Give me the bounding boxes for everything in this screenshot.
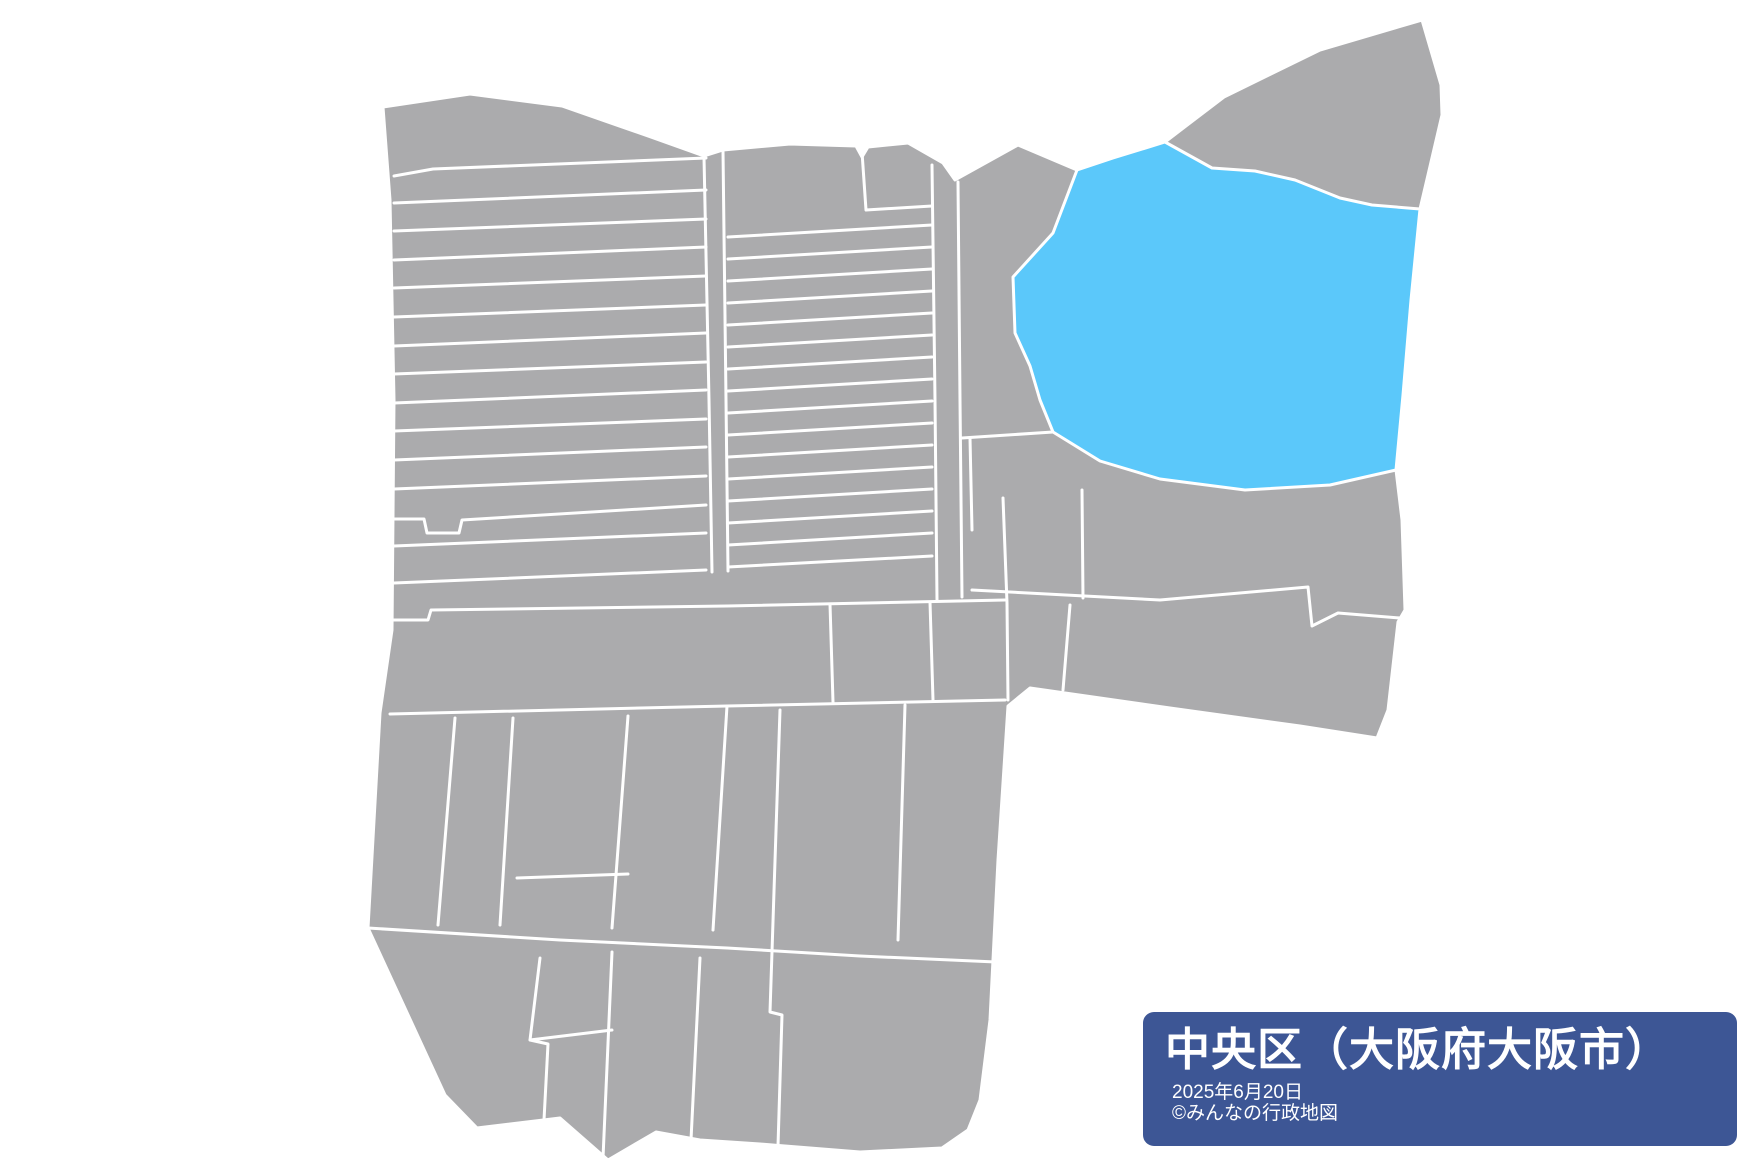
map-page: 中央区（大阪府大阪市） 2025年6月20日 ©みんなの行政地図 [0,0,1760,1170]
ward-regions-layer [368,20,1442,1160]
region-border-line [1082,490,1083,598]
panel-copyright: ©みんなの行政地図 [1172,1103,1717,1124]
map-canvas [0,0,1760,1170]
info-panel: 中央区（大阪府大阪市） 2025年6月20日 ©みんなの行政地図 [1143,1012,1737,1146]
region-border-line [970,438,972,530]
panel-title: 中央区（大阪府大阪市） [1165,1024,1717,1076]
panel-date: 2025年6月20日 [1172,1082,1717,1103]
